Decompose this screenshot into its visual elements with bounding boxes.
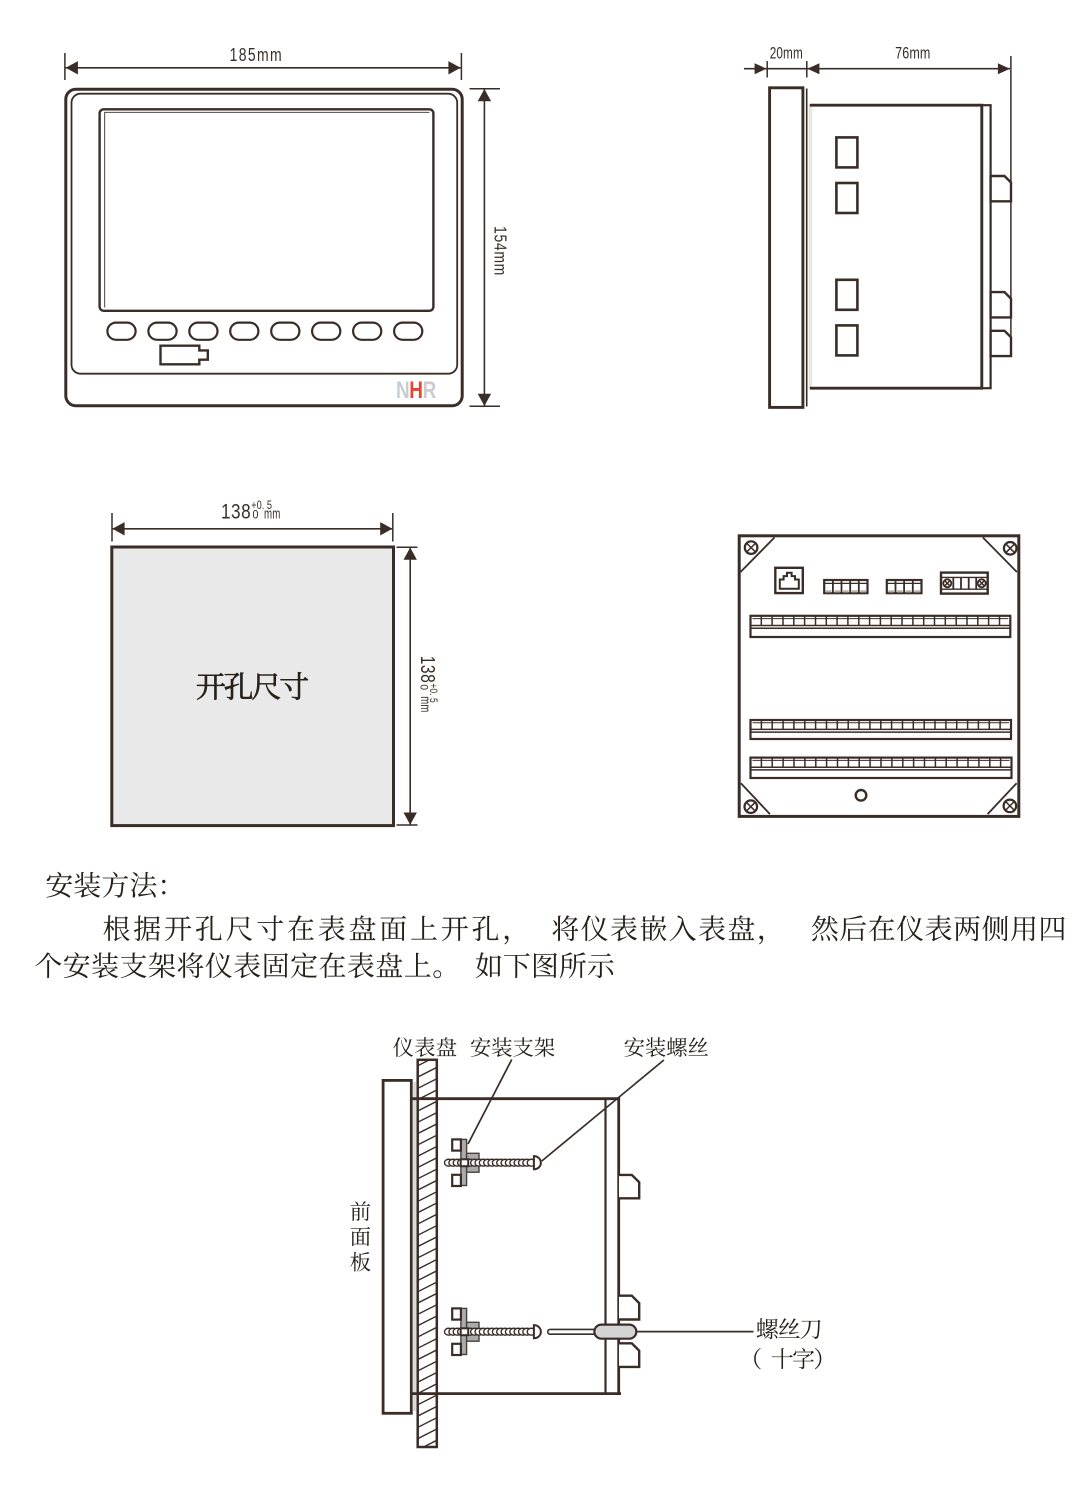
svg-text:NHR: NHR: [396, 377, 437, 404]
svg-text:185mm: 185mm: [230, 44, 283, 66]
svg-text:mm: mm: [417, 696, 433, 712]
svg-text:20mm: 20mm: [770, 45, 803, 63]
svg-text:138: 138: [416, 656, 438, 683]
svg-text:76mm: 76mm: [895, 45, 930, 63]
svg-text:0: 0: [253, 509, 259, 522]
svg-text:0: 0: [417, 684, 430, 690]
svg-text:mm: mm: [264, 506, 281, 523]
svg-text:138: 138: [221, 500, 251, 524]
svg-text:154mm: 154mm: [490, 226, 510, 276]
